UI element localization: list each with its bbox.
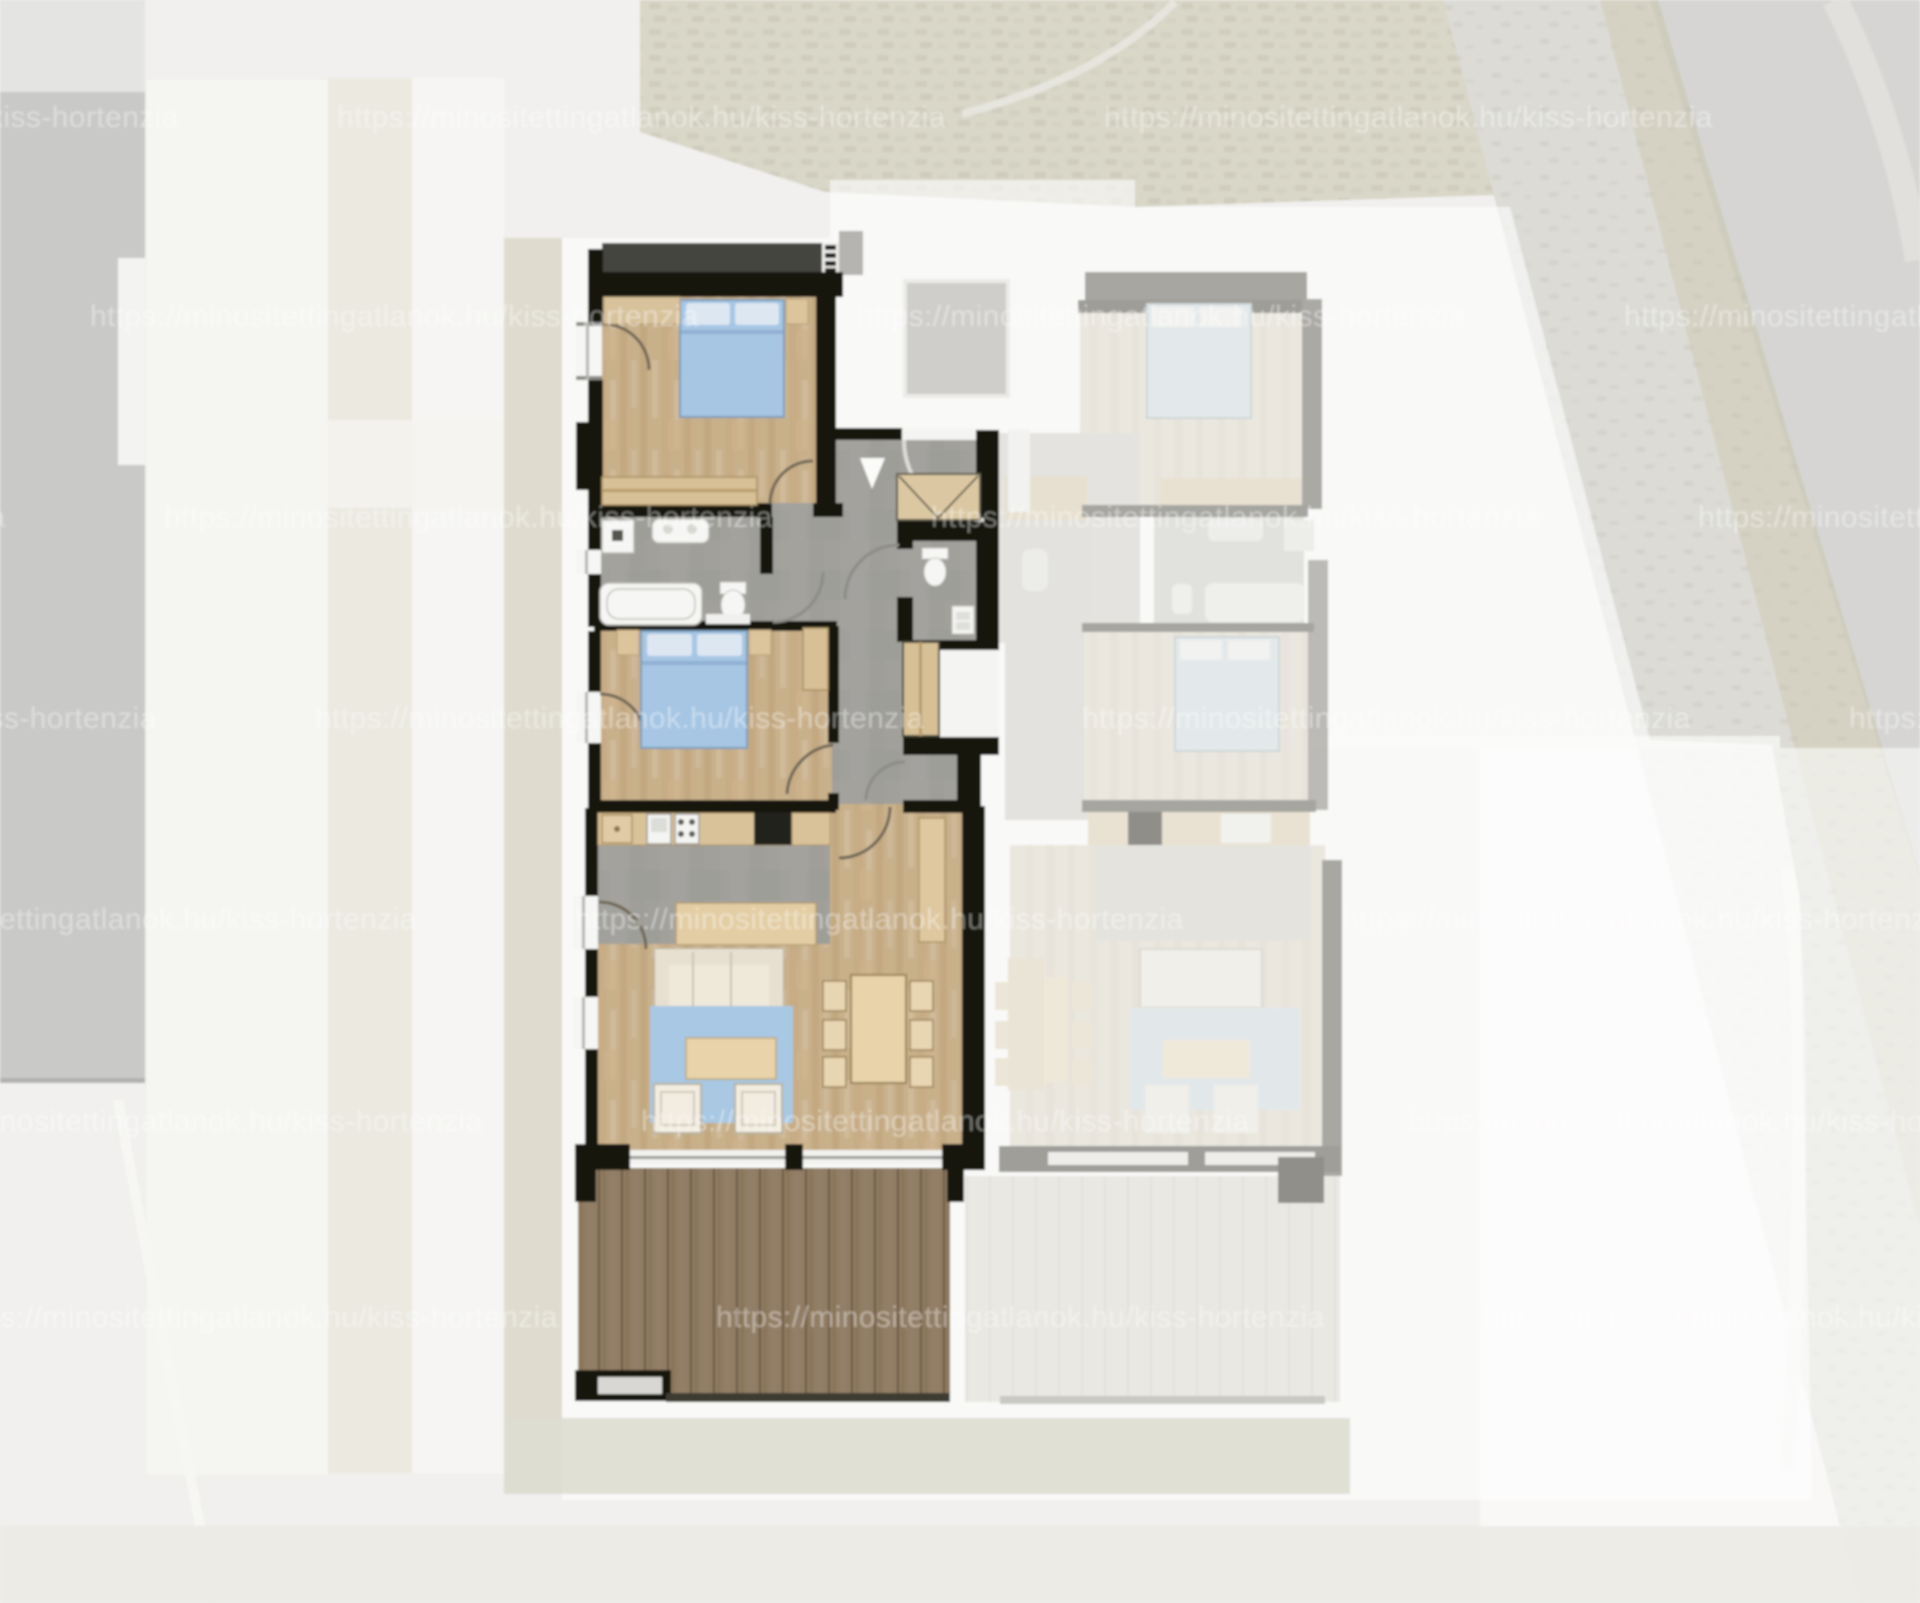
svg-text:https://minositettingatlanok.h: https://minositettingatlanok.hu/kiss-hor…: [0, 903, 417, 936]
svg-text:https://minositettingatlanok.h: https://minositettingatlanok.hu/kiss-hor…: [716, 1301, 1325, 1334]
svg-text:https://minositettingatlanok.h: https://minositettingatlanok.hu/kiss-hor…: [1342, 903, 1920, 936]
svg-text:https://minositettingatlanok.h: https://minositettingatlanok.hu/kiss-hor…: [0, 1301, 558, 1334]
svg-text:https://minositettingatlanok.h: https://minositettingatlanok.hu/kiss-hor…: [1698, 501, 1920, 534]
svg-text:https://minositettingatlanok.h: https://minositettingatlanok.hu/kiss-hor…: [0, 101, 179, 134]
svg-text:https://minositettingatlanok.h: https://minositettingatlanok.hu/kiss-hor…: [931, 501, 1540, 534]
svg-text:https://minositettingatlanok.h: https://minositettingatlanok.hu/kiss-hor…: [1849, 702, 1920, 735]
svg-text:https://minositettingatlanok.h: https://minositettingatlanok.hu/kiss-hor…: [315, 702, 924, 735]
svg-text:https://minositettingatlanok.h: https://minositettingatlanok.hu/kiss-hor…: [1104, 101, 1713, 134]
svg-text:https://minositettingatlanok.h: https://minositettingatlanok.hu/kiss-hor…: [575, 903, 1184, 936]
svg-text:https://minositettingatlanok.h: https://minositettingatlanok.hu/kiss-hor…: [0, 702, 157, 735]
svg-text:https://minositettingatlanok.h: https://minositettingatlanok.hu/kiss-hor…: [1483, 1301, 1920, 1334]
svg-text:https://minositettingatlanok.h: https://minositettingatlanok.hu/kiss-hor…: [0, 501, 6, 534]
svg-text:https://minositettingatlanok.h: https://minositettingatlanok.hu/kiss-hor…: [1082, 702, 1691, 735]
svg-text:https://minositettingatlanok.h: https://minositettingatlanok.hu/kiss-hor…: [0, 1105, 483, 1138]
svg-text:https://minositettingatlanok.h: https://minositettingatlanok.hu/kiss-hor…: [1408, 1105, 1920, 1138]
svg-text:https://minositettingatlanok.h: https://minositettingatlanok.hu/kiss-hor…: [641, 1105, 1250, 1138]
svg-text:https://minositettingatlanok.h: https://minositettingatlanok.hu/kiss-hor…: [857, 300, 1466, 333]
svg-text:https://minositettingatlanok.h: https://minositettingatlanok.hu/kiss-hor…: [90, 300, 699, 333]
svg-text:https://minositettingatlanok.h: https://minositettingatlanok.hu/kiss-hor…: [164, 501, 773, 534]
svg-text:https://minositettingatlanok.h: https://minositettingatlanok.hu/kiss-hor…: [1624, 300, 1920, 333]
svg-text:https://minositettingatlanok.h: https://minositettingatlanok.hu/kiss-hor…: [337, 101, 946, 134]
